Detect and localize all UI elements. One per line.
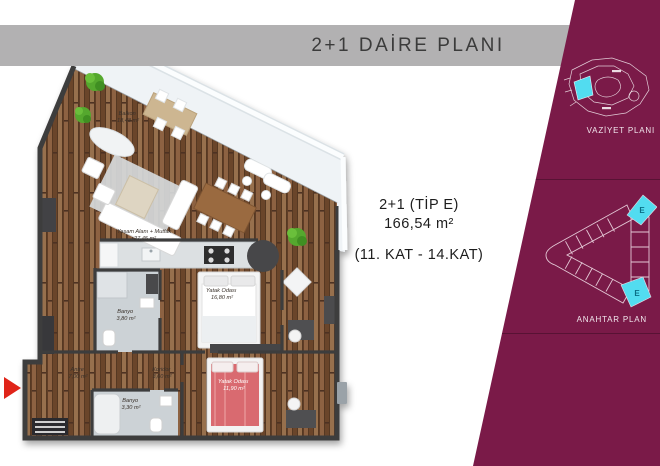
entrance-arrow-icon: [4, 377, 21, 399]
bedroom1-bed: [198, 272, 260, 348]
page: Balkon 18,48 m² Yaşam Alanı + Mutfak 27,…: [0, 0, 660, 466]
unit-letter-bottom: E: [634, 289, 640, 298]
unit-type: 2+1 (TİP E): [319, 196, 519, 215]
stove-icon: [204, 246, 234, 264]
key-plan-thumbnail[interactable]: E E: [543, 185, 657, 325]
column: [247, 240, 279, 272]
label-balkon: Balkon 18,48 m²: [117, 111, 140, 124]
apartment-plan: Balkon 18,48 m² Yaşam Alanı + Mutfak 27,…: [25, 36, 347, 440]
title-bar: 2+1 DAİRE PLANI: [0, 25, 600, 66]
vaziyet-plan-label: VAZİYET PLANI: [555, 126, 655, 135]
anahtar-plan-label: ANAHTAR PLAN: [545, 315, 647, 324]
label-koridor: Koridor 3,60 m²: [152, 367, 172, 380]
highlighted-block: [574, 76, 593, 100]
unit-letter-top: E: [639, 206, 645, 215]
page-title: 2+1 DAİRE PLANI: [311, 35, 504, 57]
wall-tab: [337, 382, 347, 404]
bedroom2-bed: [207, 358, 263, 432]
unit-floors: (11. KAT - 14.KAT): [319, 246, 519, 265]
label-banyo2: Banyo 3,30 m²: [122, 398, 142, 411]
label-banyo1: Banyo 3,80 m²: [117, 309, 137, 322]
unit-area: 166,54 m²: [319, 215, 519, 234]
unit-info: 2+1 (TİP E) 166,54 m² (11. KAT - 14.KAT): [319, 196, 519, 265]
